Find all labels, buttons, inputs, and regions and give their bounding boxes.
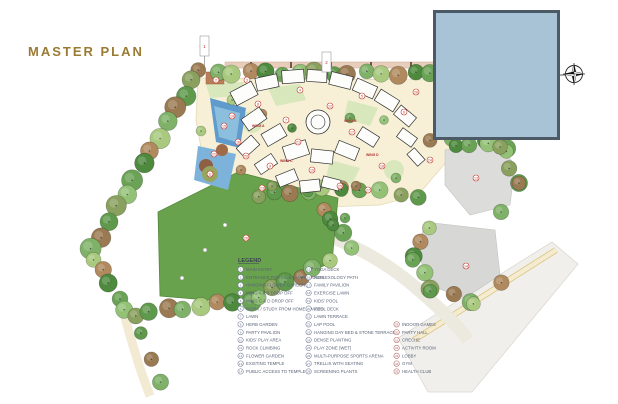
legend-item-label: EXERCISE LAWN: [314, 291, 349, 296]
legend-item: 14PUBLIC ACCESS TO TEMPLE: [238, 369, 306, 374]
svg-text:13: 13: [474, 176, 478, 180]
tree-icon: [380, 116, 389, 125]
legend-item-number: 11: [239, 346, 242, 350]
legend-item-number: 35: [395, 370, 399, 374]
legend-item: 8HERB GARDEN: [238, 322, 278, 327]
tree-icon: [501, 161, 517, 177]
flag-marker: 1: [200, 36, 209, 66]
legend-item-label: SCREENING PLANTS: [314, 369, 358, 374]
legend-item-label: MAIN ENTRY: [246, 267, 273, 272]
building-footprint: [299, 179, 320, 193]
legend-item-label: HANGING FLOWER GARDEN: [246, 283, 305, 288]
tree-icon: [493, 204, 509, 220]
svg-text:10: 10: [310, 168, 314, 172]
legend-item-number: 23: [307, 330, 311, 334]
svg-text:24: 24: [428, 158, 432, 162]
legend-item-number: 22: [307, 323, 311, 327]
svg-text:17: 17: [350, 130, 354, 134]
plan-marker: 10: [309, 167, 315, 173]
tree-icon: [417, 264, 434, 281]
legend-item: 25PLAY ZONE (WET): [306, 345, 352, 350]
plan-marker: 3: [244, 77, 250, 83]
legend-item-label: ROCK CLIMBING: [246, 346, 281, 351]
tree-icon: [144, 352, 159, 367]
legend-item: 13EXISTING TEMPLE: [238, 361, 285, 366]
tree-icon: [252, 190, 266, 204]
svg-text:18: 18: [380, 164, 384, 168]
legend-item-number: 13: [239, 362, 243, 366]
legend-item-number: 28: [307, 370, 311, 374]
legend-item-number: 10: [239, 338, 243, 342]
legend-item-number: 21: [307, 315, 311, 319]
legend-item: 29INDOOR GAMES: [394, 322, 436, 327]
legend-item-number: 18: [307, 291, 311, 295]
plan-marker: 6: [401, 109, 407, 115]
legend-item-label: LAP POOL: [314, 322, 336, 327]
tree-icon: [410, 189, 426, 205]
svg-text:6: 6: [403, 110, 405, 114]
legend-item: 23HANGING DAY BED & STONE TERRACE: [306, 330, 396, 335]
legend-item: 18EXERCISE LAWN: [306, 290, 349, 295]
legend-item: 31CRECHE: [394, 337, 420, 342]
page-title: MASTER PLAN: [28, 44, 144, 59]
legend-item-label: FAMILY PAVILION: [314, 283, 349, 288]
legend-item-label: PUBLIC ACCESS TO TEMPLE: [246, 369, 306, 374]
tree-icon: [494, 275, 510, 291]
legend-item-label: GYM: [402, 361, 412, 366]
legend-item-number: 27: [307, 362, 311, 366]
legend-item-number: 20: [307, 307, 311, 311]
tree-icon: [446, 286, 462, 302]
legend-item: 20POOL DECK: [306, 306, 339, 311]
plan-marker: 25: [337, 183, 343, 189]
wing-label: WING D: [366, 153, 379, 157]
plan-marker: 16: [235, 139, 241, 145]
legend-item-number: 15: [307, 268, 311, 272]
tree-icon: [466, 297, 480, 311]
legend-item-number: 33: [395, 354, 399, 358]
wing-label: WING C: [280, 159, 293, 163]
svg-text:14: 14: [464, 264, 468, 268]
blue-overlay-box: [433, 10, 560, 140]
plan-marker: 9: [267, 163, 273, 169]
legend-item: 5WING C & D DROP OFF: [238, 298, 294, 303]
tree-icon: [359, 64, 374, 79]
svg-text:7: 7: [285, 118, 287, 122]
legend-item-label: HEALTH CLUB: [402, 369, 431, 374]
legend-item: 2ENTRANCE PORTAL & GUARD HOUSE: [238, 275, 325, 280]
svg-text:12: 12: [328, 104, 332, 108]
tree-icon: [413, 234, 429, 250]
legend-item-label: PARTY PAVILION: [246, 330, 280, 335]
svg-text:9: 9: [269, 164, 271, 168]
svg-text:15: 15: [222, 124, 226, 128]
tree-icon: [394, 188, 408, 202]
tree-icon: [140, 303, 158, 321]
plan-marker: 14: [463, 263, 469, 269]
plan-marker: 13: [473, 175, 479, 181]
legend-item: 10KIDS' PLAY AREA: [238, 337, 282, 342]
tree-icon: [351, 181, 361, 191]
legend-item-label: MULTI-PURPOSE SPORTS ARENA: [314, 353, 384, 358]
plan-marker: 24: [427, 157, 433, 163]
tree-icon: [405, 252, 420, 267]
legend-item-label: CRECHE: [402, 338, 420, 343]
tree-icon: [288, 124, 297, 133]
tree-icon: [209, 294, 225, 310]
plan-marker: 4: [297, 87, 303, 93]
legend-item: 24DENSE PLANTING: [306, 337, 352, 342]
legend-item-label: DENSE PLANTING: [314, 338, 352, 343]
legend-item-label: KIDS' PLAY AREA: [246, 338, 281, 343]
tree-icon: [340, 213, 350, 223]
legend-item-number: 25: [307, 346, 311, 350]
tree-icon: [371, 182, 388, 199]
tree-icon: [389, 66, 407, 84]
legend-item-number: 24: [307, 338, 311, 342]
tree-icon: [243, 63, 259, 79]
plan-marker: 20: [243, 153, 249, 159]
tree-icon: [222, 65, 240, 83]
plan-marker: 18: [379, 163, 385, 169]
legend-item: 7LAWN: [238, 314, 258, 319]
legend-item: 27TRELLIS WITH SEATING: [306, 361, 364, 366]
legend-item: 28SCREENING PLANTS: [306, 369, 358, 374]
legend-item: 33LOBBY: [394, 353, 417, 358]
tree-icon: [267, 181, 277, 191]
svg-text:20: 20: [244, 154, 248, 158]
legend-item-number: 12: [239, 354, 243, 358]
plan-marker: 19: [229, 113, 235, 119]
legend-item: 30PARTY HALL: [394, 330, 429, 335]
svg-text:11: 11: [208, 172, 212, 176]
legend-item-label: LOBBY: [402, 353, 416, 358]
legend-item: 35HEALTH CLUB: [394, 369, 432, 374]
plan-marker: 23: [259, 185, 265, 191]
legend-item-label: WORK / STUDY FROM HOME SPACES: [246, 306, 324, 311]
tree-icon: [135, 153, 155, 173]
legend-item-label: LAWN: [246, 314, 258, 319]
plan-marker: 12: [327, 103, 333, 109]
legend-item: 26MULTI-PURPOSE SPORTS ARENA: [306, 353, 384, 358]
tree-icon: [99, 274, 117, 292]
svg-text:2: 2: [215, 78, 217, 82]
tree-icon: [423, 284, 437, 298]
building-footprint: [282, 69, 305, 84]
plan-marker: 15: [221, 123, 227, 129]
svg-text:4: 4: [299, 88, 301, 92]
legend-item-label: REFLEXOLOGY PATH: [314, 275, 358, 280]
svg-text:22: 22: [212, 152, 216, 156]
wing-label: WING A: [252, 124, 265, 128]
legend-item: 34GYM: [394, 361, 412, 366]
legend-item-label: HERB GARDEN: [246, 322, 278, 327]
plan-marker: 22: [211, 151, 217, 157]
svg-text:26: 26: [244, 236, 248, 240]
svg-text:21: 21: [296, 140, 300, 144]
legend-item-label: POOL DECK: [314, 306, 339, 311]
legend-item-label: FLOWER GARDEN: [246, 353, 284, 358]
tree-icon: [236, 165, 246, 175]
tree-icon: [196, 126, 206, 136]
tree-icon: [192, 298, 210, 316]
clubhouse: [306, 110, 330, 134]
plan-marker: 8: [255, 101, 261, 107]
tree-icon: [152, 374, 168, 390]
tree-icon: [422, 221, 436, 235]
legend-item: 22LAP POOL: [306, 322, 336, 327]
building-footprint: [310, 149, 333, 164]
legend-item: 4WING A & B DROP OFF: [238, 290, 293, 295]
legend-item: 3HANGING FLOWER GARDEN: [238, 282, 305, 287]
legend-item: 9PARTY PAVILION: [238, 330, 280, 335]
tree-icon: [134, 327, 147, 340]
tree-icon: [182, 71, 200, 89]
tree-icon: [327, 219, 339, 231]
legend-item-label: WING C & D DROP OFF: [246, 298, 294, 303]
svg-text:23: 23: [260, 186, 264, 190]
legend-item-label: PLAY ZONE (WET): [314, 346, 352, 351]
svg-text:3: 3: [246, 78, 248, 82]
plan-marker: 11: [207, 171, 213, 177]
compass-icon: [556, 63, 585, 85]
legend-item-number: 17: [307, 283, 311, 287]
tree-icon: [512, 176, 526, 190]
legend-item-label: YOGA DECK: [314, 267, 339, 272]
tree-icon: [322, 253, 337, 268]
legend-item-number: 16: [307, 275, 311, 279]
legend-item-label: ACTIVITY ROOM: [402, 346, 436, 351]
legend-item-number: 30: [395, 330, 399, 334]
svg-text:27: 27: [366, 188, 370, 192]
legend-item-label: LAWN TERRACE: [314, 314, 348, 319]
legend-item: 21LAWN TERRACE: [306, 314, 348, 319]
svg-text:25: 25: [338, 184, 342, 188]
legend-item-number: 31: [395, 338, 399, 342]
legend-item-number: 34: [395, 362, 399, 366]
tree-icon: [391, 173, 401, 183]
legend-item-number: 29: [395, 323, 399, 327]
legend-item: 16REFLEXOLOGY PATH: [306, 275, 358, 280]
legend-header: LEGEND: [238, 258, 261, 264]
plan-marker: 7: [283, 117, 289, 123]
plan-marker: 5: [359, 93, 365, 99]
svg-text:5: 5: [361, 94, 363, 98]
plan-marker: 27: [365, 187, 371, 193]
plan-marker: 26: [243, 235, 249, 241]
svg-text:16: 16: [236, 140, 240, 144]
legend-item: 11ROCK CLIMBING: [238, 345, 281, 350]
legend-item-label: TRELLIS WITH SEATING: [314, 361, 364, 366]
wing-label: WING B: [344, 119, 357, 123]
plan-marker: 21: [295, 139, 301, 145]
svg-text:28: 28: [414, 90, 418, 94]
legend-item-label: INDOOR GAMES: [402, 322, 436, 327]
tree-icon: [344, 241, 359, 256]
legend-item: 32ACTIVITY ROOM: [394, 345, 436, 350]
tree-icon: [373, 66, 390, 83]
tree-icon: [493, 140, 508, 155]
legend-item-label: HANGING DAY BED & STONE TERRACE: [314, 330, 395, 335]
legend-item-number: 26: [307, 354, 311, 358]
legend-item-number: 32: [395, 346, 399, 350]
plan-marker: 17: [349, 129, 355, 135]
legend-item: 17FAMILY PAVILION: [306, 282, 349, 287]
plan-marker: 28: [413, 89, 419, 95]
svg-text:19: 19: [230, 114, 234, 118]
tree-icon: [158, 112, 177, 131]
legend-item-label: KIDS' POOL: [314, 298, 339, 303]
legend-item-number: 19: [307, 299, 311, 303]
tree-icon: [449, 139, 463, 153]
legend-item-label: EXISTING TEMPLE: [246, 361, 284, 366]
tree-icon: [174, 301, 191, 318]
legend-item: 12FLOWER GARDEN: [238, 353, 284, 358]
pool-deck: [216, 144, 228, 156]
plan-marker: 2: [213, 77, 219, 83]
legend-item-label: WING A & B DROP OFF: [246, 291, 293, 296]
legend-item-number: 14: [239, 370, 243, 374]
tree-icon: [281, 185, 298, 202]
svg-text:8: 8: [257, 102, 259, 106]
legend-item: 19KIDS' POOL: [306, 298, 339, 303]
legend-item-label: PARTY HALL: [402, 330, 428, 335]
